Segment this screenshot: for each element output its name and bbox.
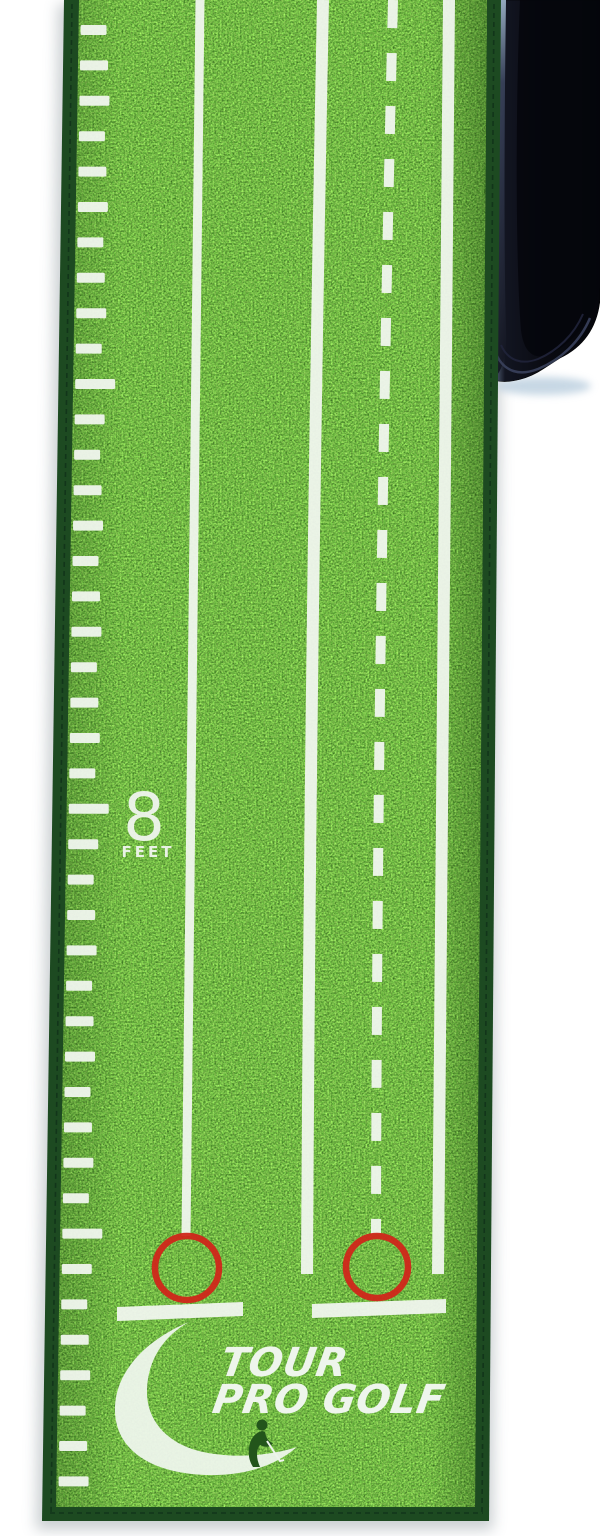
ruler-inch-tick [66, 981, 92, 991]
ruler-foot-tick [62, 1229, 102, 1239]
ruler-inch-tick [59, 1441, 87, 1451]
ruler-inch-tick [63, 1158, 93, 1168]
ruler-inch-tick [79, 96, 109, 106]
ruler-inch-tick [60, 1370, 90, 1380]
ruler-inch-tick [73, 521, 103, 531]
ruler-foot-tick [75, 379, 115, 389]
ruler-inch-tick [71, 662, 97, 672]
ruler-inch-tick [64, 1087, 90, 1097]
tray-cavity [517, 0, 600, 356]
ruler-inch-tick [68, 875, 94, 885]
ruler-inch-tick [76, 308, 106, 318]
ruler-inch-tick [70, 698, 98, 708]
ruler-inch-tick [77, 237, 103, 247]
putting-mat: 8 FEET TOUR PRO GOLF [40, 0, 510, 1521]
ruler-inch-tick [77, 273, 105, 283]
ruler-inch-tick [60, 1406, 86, 1416]
ruler-inch-tick [73, 556, 99, 566]
ruler-inch-tick [66, 1016, 94, 1026]
distance-unit: FEET [122, 843, 175, 861]
ruler-inch-tick [69, 768, 95, 778]
ruler-inch-tick [59, 1476, 89, 1486]
ruler-inch-tick [71, 627, 101, 637]
ruler-inch-tick [78, 202, 108, 212]
ruler-inch-tick [62, 1264, 92, 1274]
ruler-inch-tick [72, 591, 100, 601]
scene-canvas: 8 FEET TOUR PRO GOLF [0, 0, 600, 1536]
ruler-inch-tick [74, 450, 100, 460]
logo-text-pro-golf: PRO GOLF [209, 1377, 448, 1423]
logo-line2-group: PRO GOLF [209, 1377, 448, 1423]
ruler-inch-tick [78, 167, 106, 177]
ruler-inch-tick [81, 25, 107, 35]
ruler-inch-tick [67, 910, 95, 920]
ruler-inch-tick [75, 414, 105, 424]
ruler-inch-tick [64, 1122, 92, 1132]
ruler-inch-tick [80, 60, 108, 70]
ruler-inch-tick [76, 344, 102, 354]
ruler-inch-tick [70, 733, 100, 743]
ruler-inch-tick [74, 485, 102, 495]
ruler-inch-tick [61, 1335, 89, 1345]
product-photo-scene: 8 FEET TOUR PRO GOLF [0, 0, 600, 1536]
ruler-inch-tick [68, 839, 98, 849]
ruler-foot-tick [69, 804, 109, 814]
ruler-inch-tick [79, 131, 105, 141]
ruler-inch-tick [61, 1299, 87, 1309]
ruler-inch-tick [65, 1052, 95, 1062]
ruler-inch-tick [63, 1193, 89, 1203]
ruler-inch-tick [67, 945, 97, 955]
ball-return-tray [486, 0, 600, 395]
